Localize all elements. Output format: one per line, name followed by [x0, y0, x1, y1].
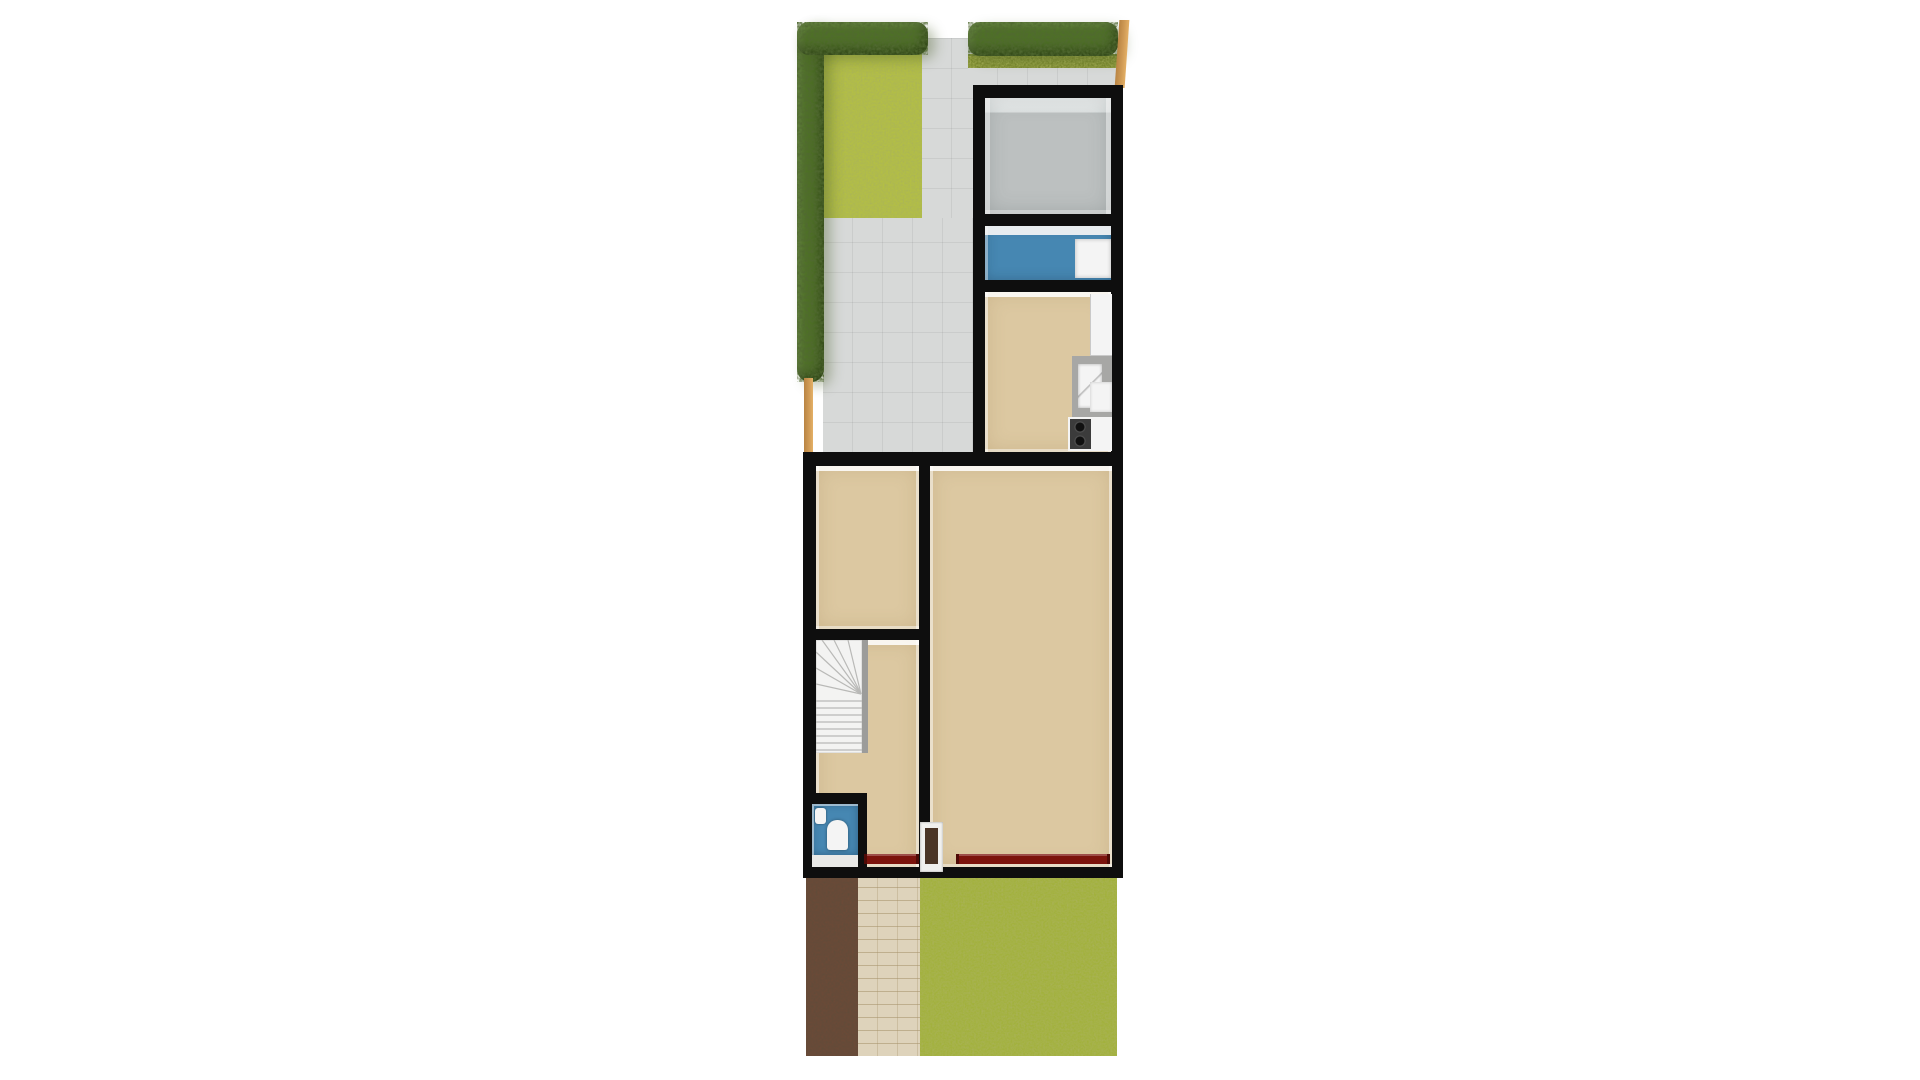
soil-bed	[806, 878, 858, 1056]
staircase	[816, 640, 862, 753]
storage-room-floor	[985, 98, 1111, 214]
toilet-washbasin	[815, 808, 826, 824]
living-room-floor	[930, 466, 1112, 867]
living-room-radiator	[956, 854, 1110, 864]
stair-railing	[862, 640, 868, 753]
front-room-floor	[816, 466, 919, 629]
back-lawn	[823, 52, 922, 218]
floorplan-canvas	[0, 0, 1920, 1080]
fence-left-segment	[804, 378, 813, 454]
paved-patio	[823, 216, 973, 452]
garden-brick-path	[858, 878, 920, 1056]
hedge-top-left	[797, 22, 928, 55]
hedge-top-right	[968, 22, 1118, 56]
lawn-edge-strip	[968, 54, 1118, 68]
kitchen-cabinet-low	[1090, 382, 1112, 412]
toilet-threshold	[812, 855, 858, 867]
utility-appliance	[1075, 239, 1111, 278]
hallway-radiator	[864, 854, 919, 864]
kitchen-cabinet-tall	[1090, 294, 1112, 356]
toilet-fixture	[827, 820, 848, 850]
stove-burners	[1070, 419, 1091, 449]
patio-entry-path	[922, 38, 973, 218]
front-lawn	[920, 878, 1117, 1056]
front-door-leaf	[925, 828, 938, 864]
hedge-left	[797, 22, 824, 382]
patio-top-strip	[968, 66, 1118, 87]
